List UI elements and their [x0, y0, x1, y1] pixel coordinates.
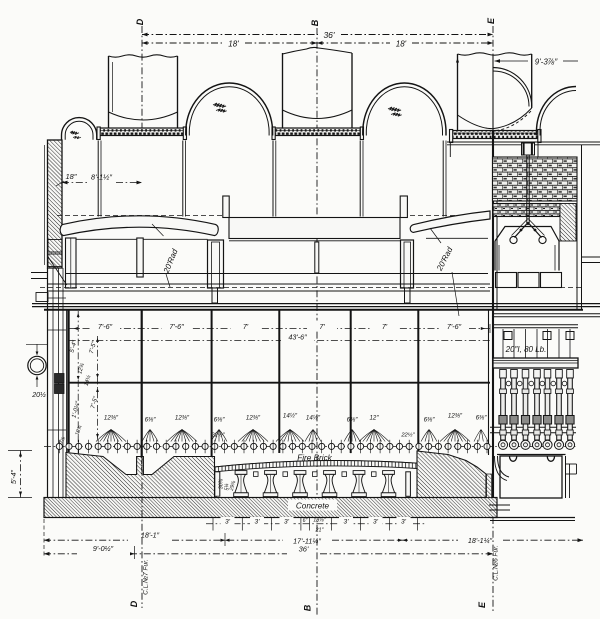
- svg-text:14½″: 14½″: [306, 415, 321, 422]
- svg-text:6⅜″: 6⅜″: [145, 417, 157, 424]
- svg-text:18″: 18″: [66, 172, 77, 181]
- svg-text:7'-6″: 7'-6″: [98, 322, 113, 331]
- svg-text:7': 7': [382, 322, 388, 331]
- svg-text:6⅜″: 6⅜″: [476, 415, 488, 422]
- svg-text:3': 3': [401, 519, 407, 526]
- svg-text:3': 3': [344, 519, 350, 526]
- svg-text:E: E: [486, 17, 496, 24]
- svg-text:B: B: [310, 19, 320, 26]
- svg-text:21″: 21″: [315, 528, 325, 534]
- svg-text:6⅜″: 6⅜″: [424, 417, 436, 424]
- svg-text:3': 3': [373, 519, 379, 526]
- svg-text:7': 7': [243, 322, 249, 331]
- svg-text:3': 3': [225, 519, 231, 526]
- svg-text:C.L.№7 Fur.: C.L.№7 Fur.: [143, 559, 150, 595]
- svg-text:6⅜″: 6⅜″: [347, 417, 359, 424]
- svg-text:18'-1¼″: 18'-1¼″: [468, 536, 493, 545]
- svg-text:B: B: [303, 604, 313, 611]
- svg-text:18': 18': [228, 40, 239, 49]
- svg-text:Concrete: Concrete: [296, 502, 330, 511]
- svg-text:36': 36': [299, 545, 309, 554]
- svg-text:43'-6″: 43'-6″: [288, 333, 307, 342]
- svg-text:E: E: [477, 601, 487, 608]
- svg-text:18'-1″: 18'-1″: [141, 531, 160, 540]
- svg-text:18': 18': [396, 40, 407, 49]
- svg-text:18⅞″: 18⅞″: [313, 518, 326, 524]
- svg-text:6″: 6″: [303, 518, 308, 524]
- svg-text:3': 3': [284, 519, 290, 526]
- svg-text:14½″: 14½″: [283, 413, 298, 420]
- svg-text:12⅜″: 12⅜″: [104, 415, 119, 422]
- svg-text:7'-6″: 7'-6″: [447, 322, 462, 331]
- svg-text:22½″: 22½″: [210, 432, 225, 439]
- svg-text:22½″: 22½″: [400, 432, 415, 439]
- svg-text:7'-6″: 7'-6″: [169, 322, 184, 331]
- svg-text:5'-4″: 5'-4″: [11, 470, 18, 484]
- svg-text:8'-1½″: 8'-1½″: [91, 173, 113, 182]
- svg-text:3': 3': [255, 519, 261, 526]
- svg-text:12⅜″: 12⅜″: [246, 415, 261, 422]
- svg-text:12″: 12″: [369, 415, 379, 422]
- svg-text:12⅜″: 12⅜″: [175, 415, 190, 422]
- svg-text:12⅜″: 12⅜″: [448, 413, 463, 420]
- svg-text:D: D: [135, 18, 145, 25]
- svg-text:6⅜″: 6⅜″: [214, 417, 226, 424]
- svg-text:C.L.№6 Fur.: C.L.№6 Fur.: [493, 545, 500, 581]
- svg-text:20½: 20½: [31, 391, 46, 399]
- svg-text:7': 7': [319, 322, 325, 331]
- svg-text:9'-3⅞″: 9'-3⅞″: [535, 58, 559, 67]
- svg-text:D: D: [129, 600, 139, 607]
- svg-text:9'-0½″: 9'-0½″: [93, 544, 114, 553]
- svg-text:36': 36': [323, 30, 334, 40]
